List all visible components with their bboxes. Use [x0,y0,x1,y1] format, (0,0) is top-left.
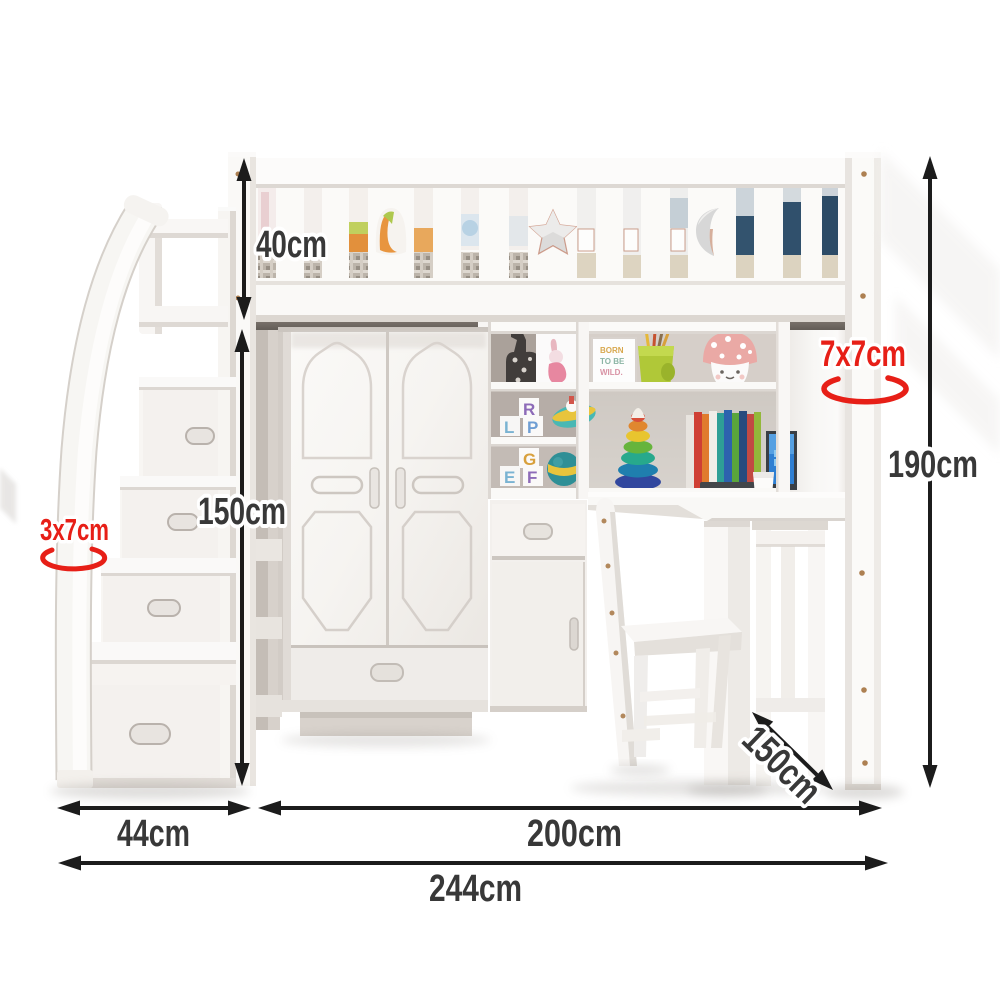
svg-text:244cm: 244cm [429,868,522,910]
svg-text:F: F [527,468,537,487]
svg-text:E: E [504,468,515,487]
svg-text:P: P [527,418,538,437]
svg-text:BORN: BORN [600,346,624,355]
svg-text:3x7cm: 3x7cm [40,512,109,547]
svg-text:190cm: 190cm [888,444,978,486]
svg-text:WILD.: WILD. [600,368,623,377]
svg-text:44cm: 44cm [117,813,190,855]
svg-text:L: L [504,418,514,437]
svg-text:200cm: 200cm [527,813,622,855]
svg-text:7x7cm: 7x7cm [820,333,906,374]
svg-text:TO BE: TO BE [600,357,625,366]
svg-text:40cm: 40cm [256,224,327,266]
svg-text:150cm: 150cm [198,491,286,533]
